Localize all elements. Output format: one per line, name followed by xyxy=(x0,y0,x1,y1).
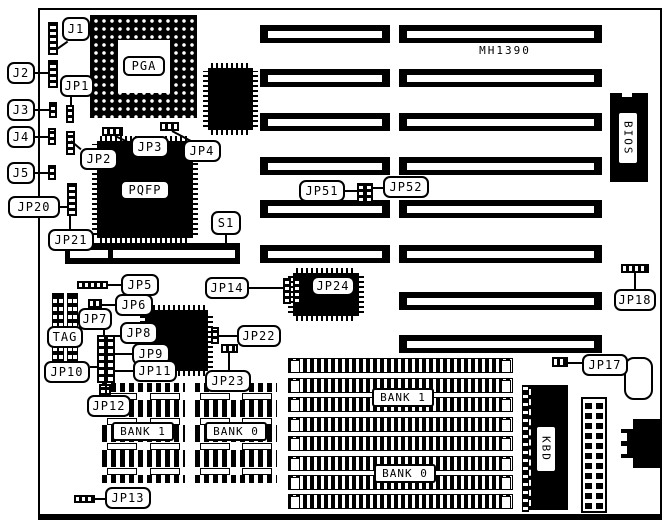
keyboard-din-connector-front xyxy=(621,429,634,458)
j3-jumper xyxy=(49,102,57,118)
board-model-text: MH1390 xyxy=(445,44,565,57)
callout-s1: S1 xyxy=(211,211,241,235)
connector-outline xyxy=(624,357,653,400)
callout-jp7: JP7 xyxy=(78,308,112,330)
callout-jp17: JP17 xyxy=(582,354,628,376)
callout-jp51: JP51 xyxy=(299,180,345,202)
callout-jp10: JP10 xyxy=(44,361,90,383)
callout-jp1: JP1 xyxy=(60,75,94,97)
pointer-jp11 xyxy=(115,370,134,372)
callout-jp24: JP24 xyxy=(311,276,355,296)
pointer-j4 xyxy=(34,136,49,138)
callout-jp4: JP4 xyxy=(183,140,221,162)
bios-label: BIOS xyxy=(618,112,638,164)
j5-jumper xyxy=(48,165,56,180)
pointer-jp23 xyxy=(228,353,230,371)
pointer-jp9 xyxy=(115,353,133,355)
jp8-jp11-header xyxy=(97,335,115,383)
pointer-jp7 xyxy=(103,329,105,336)
isa-slot xyxy=(399,335,602,353)
callout-j2: J2 xyxy=(7,62,35,84)
jp20-jp21-header xyxy=(67,183,77,216)
pointer-s1 xyxy=(225,234,227,244)
jp18-header xyxy=(621,264,649,273)
simm-socket xyxy=(195,458,277,483)
pga-label: PGA xyxy=(123,56,165,76)
callout-j1: J1 xyxy=(62,17,90,41)
chip-pins xyxy=(148,305,205,310)
callout-jp2: JP2 xyxy=(80,148,118,170)
pointer-jp1 xyxy=(70,97,72,105)
isa-slot xyxy=(260,25,390,43)
callout-jp52: JP52 xyxy=(383,176,429,198)
jp52-jumper xyxy=(365,183,373,203)
keyboard-pin-header xyxy=(581,397,607,513)
isa-slot xyxy=(399,245,602,263)
jp4-jumper xyxy=(160,122,179,131)
j2-header xyxy=(48,60,58,88)
pointer-j2 xyxy=(34,72,49,74)
callout-j3: J3 xyxy=(7,99,35,121)
motherboard-jumper-diagram: MH1390 PGA PQFP xyxy=(0,0,665,527)
small-bank1-label: BANK 1 xyxy=(112,422,174,441)
isa-slot xyxy=(260,69,390,87)
pointer-jp17 xyxy=(568,362,583,364)
callout-jp5: JP5 xyxy=(121,274,159,296)
simm-socket xyxy=(288,494,513,509)
chip-pins xyxy=(359,276,364,313)
callout-jp18: JP18 xyxy=(614,289,656,311)
jp17-jumper xyxy=(552,357,568,367)
qfp-chip xyxy=(208,68,253,130)
kbd-label: KBD xyxy=(536,426,556,472)
pointer-jp20 xyxy=(59,206,68,208)
pointer-jp51 xyxy=(345,190,358,192)
isa-slot xyxy=(399,292,602,310)
callout-jp11: JP11 xyxy=(133,360,177,382)
jp1-jumper xyxy=(66,105,74,123)
callout-jp3: JP3 xyxy=(131,136,169,158)
pointer-jp18 xyxy=(634,273,636,290)
jp3-jumper xyxy=(102,127,123,136)
isa-slot xyxy=(399,25,602,43)
large-bank1-label: BANK 1 xyxy=(372,388,434,407)
chip-pins xyxy=(211,63,250,68)
pointer-j3 xyxy=(34,109,50,111)
chip-pins xyxy=(296,268,356,273)
callout-jp20: JP20 xyxy=(8,196,60,218)
simm-socket xyxy=(288,436,513,451)
jp5-jumper xyxy=(77,281,108,289)
pointer-jp21 xyxy=(69,216,71,229)
pointer-j5 xyxy=(34,172,49,174)
callout-jp23: JP23 xyxy=(205,370,251,392)
jp6-jumper xyxy=(88,299,102,308)
jp13-jumper xyxy=(74,495,95,503)
keyboard-din-connector xyxy=(633,419,662,468)
callout-j4: J4 xyxy=(7,126,35,148)
pointer-jp14 xyxy=(248,287,283,289)
callout-jp22: JP22 xyxy=(237,325,281,347)
callout-jp14: JP14 xyxy=(205,277,249,299)
simm-socket xyxy=(102,458,185,483)
pointer-jp10 xyxy=(90,366,98,368)
isa-slot xyxy=(399,113,602,131)
simm-socket xyxy=(288,358,513,373)
isa-slot xyxy=(260,245,390,263)
small-bank0-label: BANK 0 xyxy=(205,422,267,441)
isa-slot xyxy=(399,157,602,175)
jp14-jumper xyxy=(283,278,291,304)
callout-jp6: JP6 xyxy=(115,294,153,316)
pqfp-label: PQFP xyxy=(120,180,170,200)
large-bank0-label: BANK 0 xyxy=(374,464,436,483)
jp51-jumper xyxy=(357,183,365,203)
isa-slot xyxy=(260,157,390,175)
callout-jp8: JP8 xyxy=(120,322,158,344)
callout-jp21: JP21 xyxy=(48,229,94,251)
jp24-jumper xyxy=(293,278,301,304)
pointer-jp5 xyxy=(108,284,122,286)
pointer-jp6 xyxy=(102,304,116,306)
j1-header xyxy=(48,22,58,55)
simm-socket xyxy=(288,417,513,432)
isa-slot xyxy=(260,113,390,131)
callout-jp13: JP13 xyxy=(105,487,151,509)
callout-j5: J5 xyxy=(7,162,35,184)
callout-jp12: JP12 xyxy=(87,395,131,417)
isa-slot xyxy=(399,200,602,218)
jp23-jumper xyxy=(221,344,238,353)
chip-pins xyxy=(203,71,208,127)
callout-tag: TAG xyxy=(47,326,83,348)
pointer-jp22 xyxy=(218,335,238,337)
chip-pins xyxy=(211,130,250,135)
isa-slot xyxy=(399,69,602,87)
chip-pins xyxy=(296,316,356,321)
j4-jumper xyxy=(48,128,56,145)
pin-strip xyxy=(522,385,529,512)
chip-pins xyxy=(253,71,258,127)
